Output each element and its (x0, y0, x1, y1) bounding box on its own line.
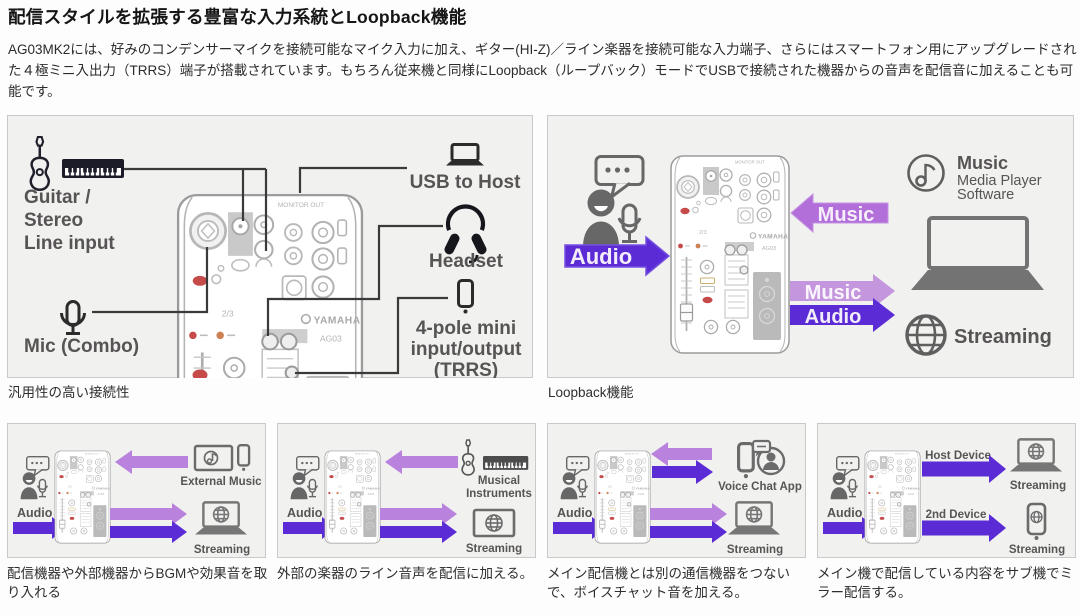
svg-text:Audio: Audio (827, 506, 863, 520)
svg-text:Audio: Audio (287, 506, 323, 520)
svg-text:4-pole mini: 4-pole mini (416, 318, 516, 339)
svg-text:Streaming: Streaming (194, 544, 250, 556)
svg-text:Streaming: Streaming (727, 544, 783, 556)
svg-text:External Music: External Music (180, 476, 262, 488)
svg-text:2nd Device: 2nd Device (926, 509, 987, 521)
svg-text:input/output: input/output (411, 339, 522, 360)
svg-text:Streaming: Streaming (1010, 480, 1066, 492)
svg-text:Audio: Audio (570, 244, 632, 269)
svg-text:Musical: Musical (478, 475, 520, 487)
svg-text:Software: Software (957, 187, 1014, 203)
svg-text:Line input: Line input (24, 233, 115, 254)
svg-text:USB to Host: USB to Host (410, 172, 522, 193)
svg-text:(TRRS): (TRRS) (434, 360, 498, 378)
svg-text:Guitar /: Guitar / (24, 187, 91, 208)
svg-text:Music: Music (957, 153, 1008, 173)
svg-text:Streaming: Streaming (1009, 544, 1065, 556)
svg-text:Host Device: Host Device (925, 450, 991, 462)
svg-text:Music: Music (818, 204, 875, 226)
svg-text:Streaming: Streaming (954, 326, 1052, 348)
svg-text:Audio: Audio (805, 306, 862, 328)
svg-text:Mic (Combo): Mic (Combo) (24, 336, 139, 357)
svg-text:Music: Music (805, 282, 862, 304)
svg-text:Headset: Headset (429, 251, 504, 272)
svg-text:Instruments: Instruments (466, 488, 532, 500)
svg-text:Audio: Audio (557, 506, 593, 520)
svg-text:Audio: Audio (17, 506, 53, 520)
svg-text:Voice Chat App: Voice Chat App (718, 481, 802, 493)
svg-text:Stereo: Stereo (24, 210, 83, 231)
svg-text:Streaming: Streaming (466, 543, 522, 555)
